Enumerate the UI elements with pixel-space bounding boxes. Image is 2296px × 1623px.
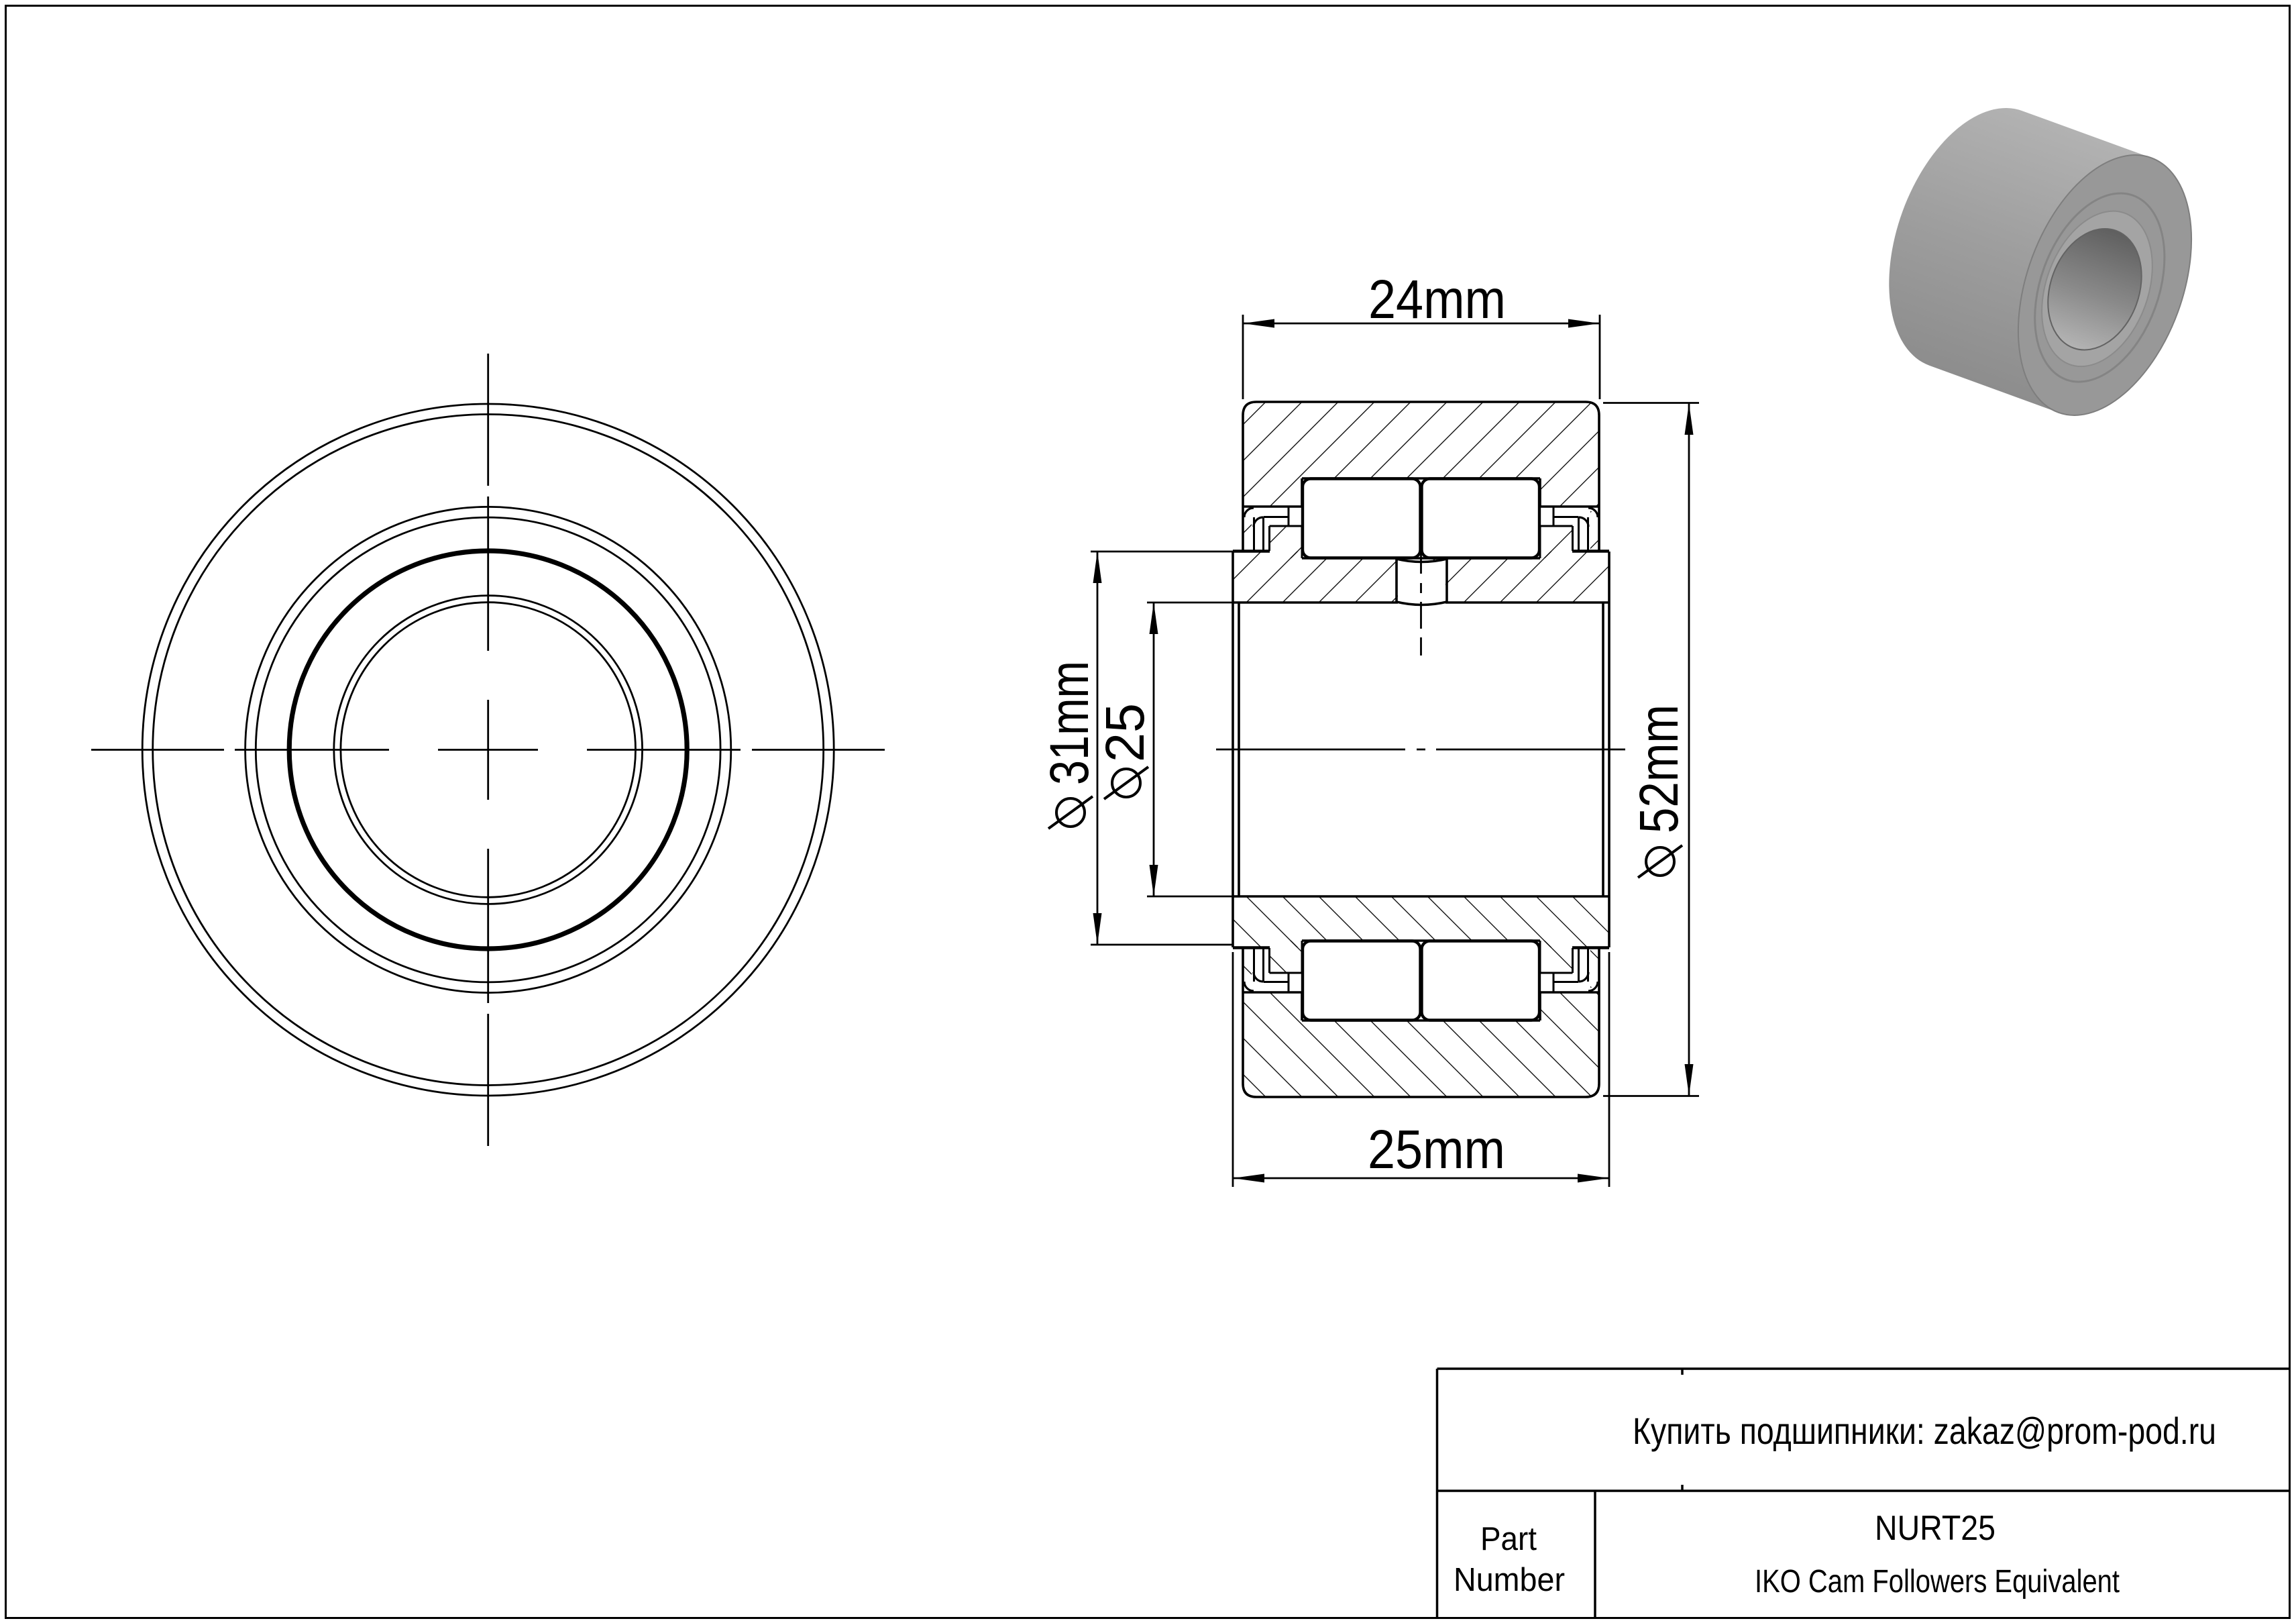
svg-text:25mm: 25mm [1368, 1119, 1505, 1180]
svg-text:IKO Cam Followers Equivalent: IKO Cam Followers Equivalent [1755, 1564, 2120, 1600]
svg-text:25: 25 [1095, 703, 1156, 762]
svg-text:Number: Number [1454, 1562, 1565, 1598]
svg-text:31mm: 31mm [1039, 661, 1100, 785]
svg-text:Part: Part [1480, 1521, 1537, 1557]
svg-text:24mm: 24mm [1368, 269, 1506, 330]
svg-text:52mm: 52mm [1629, 704, 1690, 833]
svg-text:NURT25: NURT25 [1875, 1509, 1996, 1548]
svg-text:Купить подшипники: zakaz@prom-: Купить подшипники: zakaz@prom-pod.ru [1633, 1410, 2216, 1452]
